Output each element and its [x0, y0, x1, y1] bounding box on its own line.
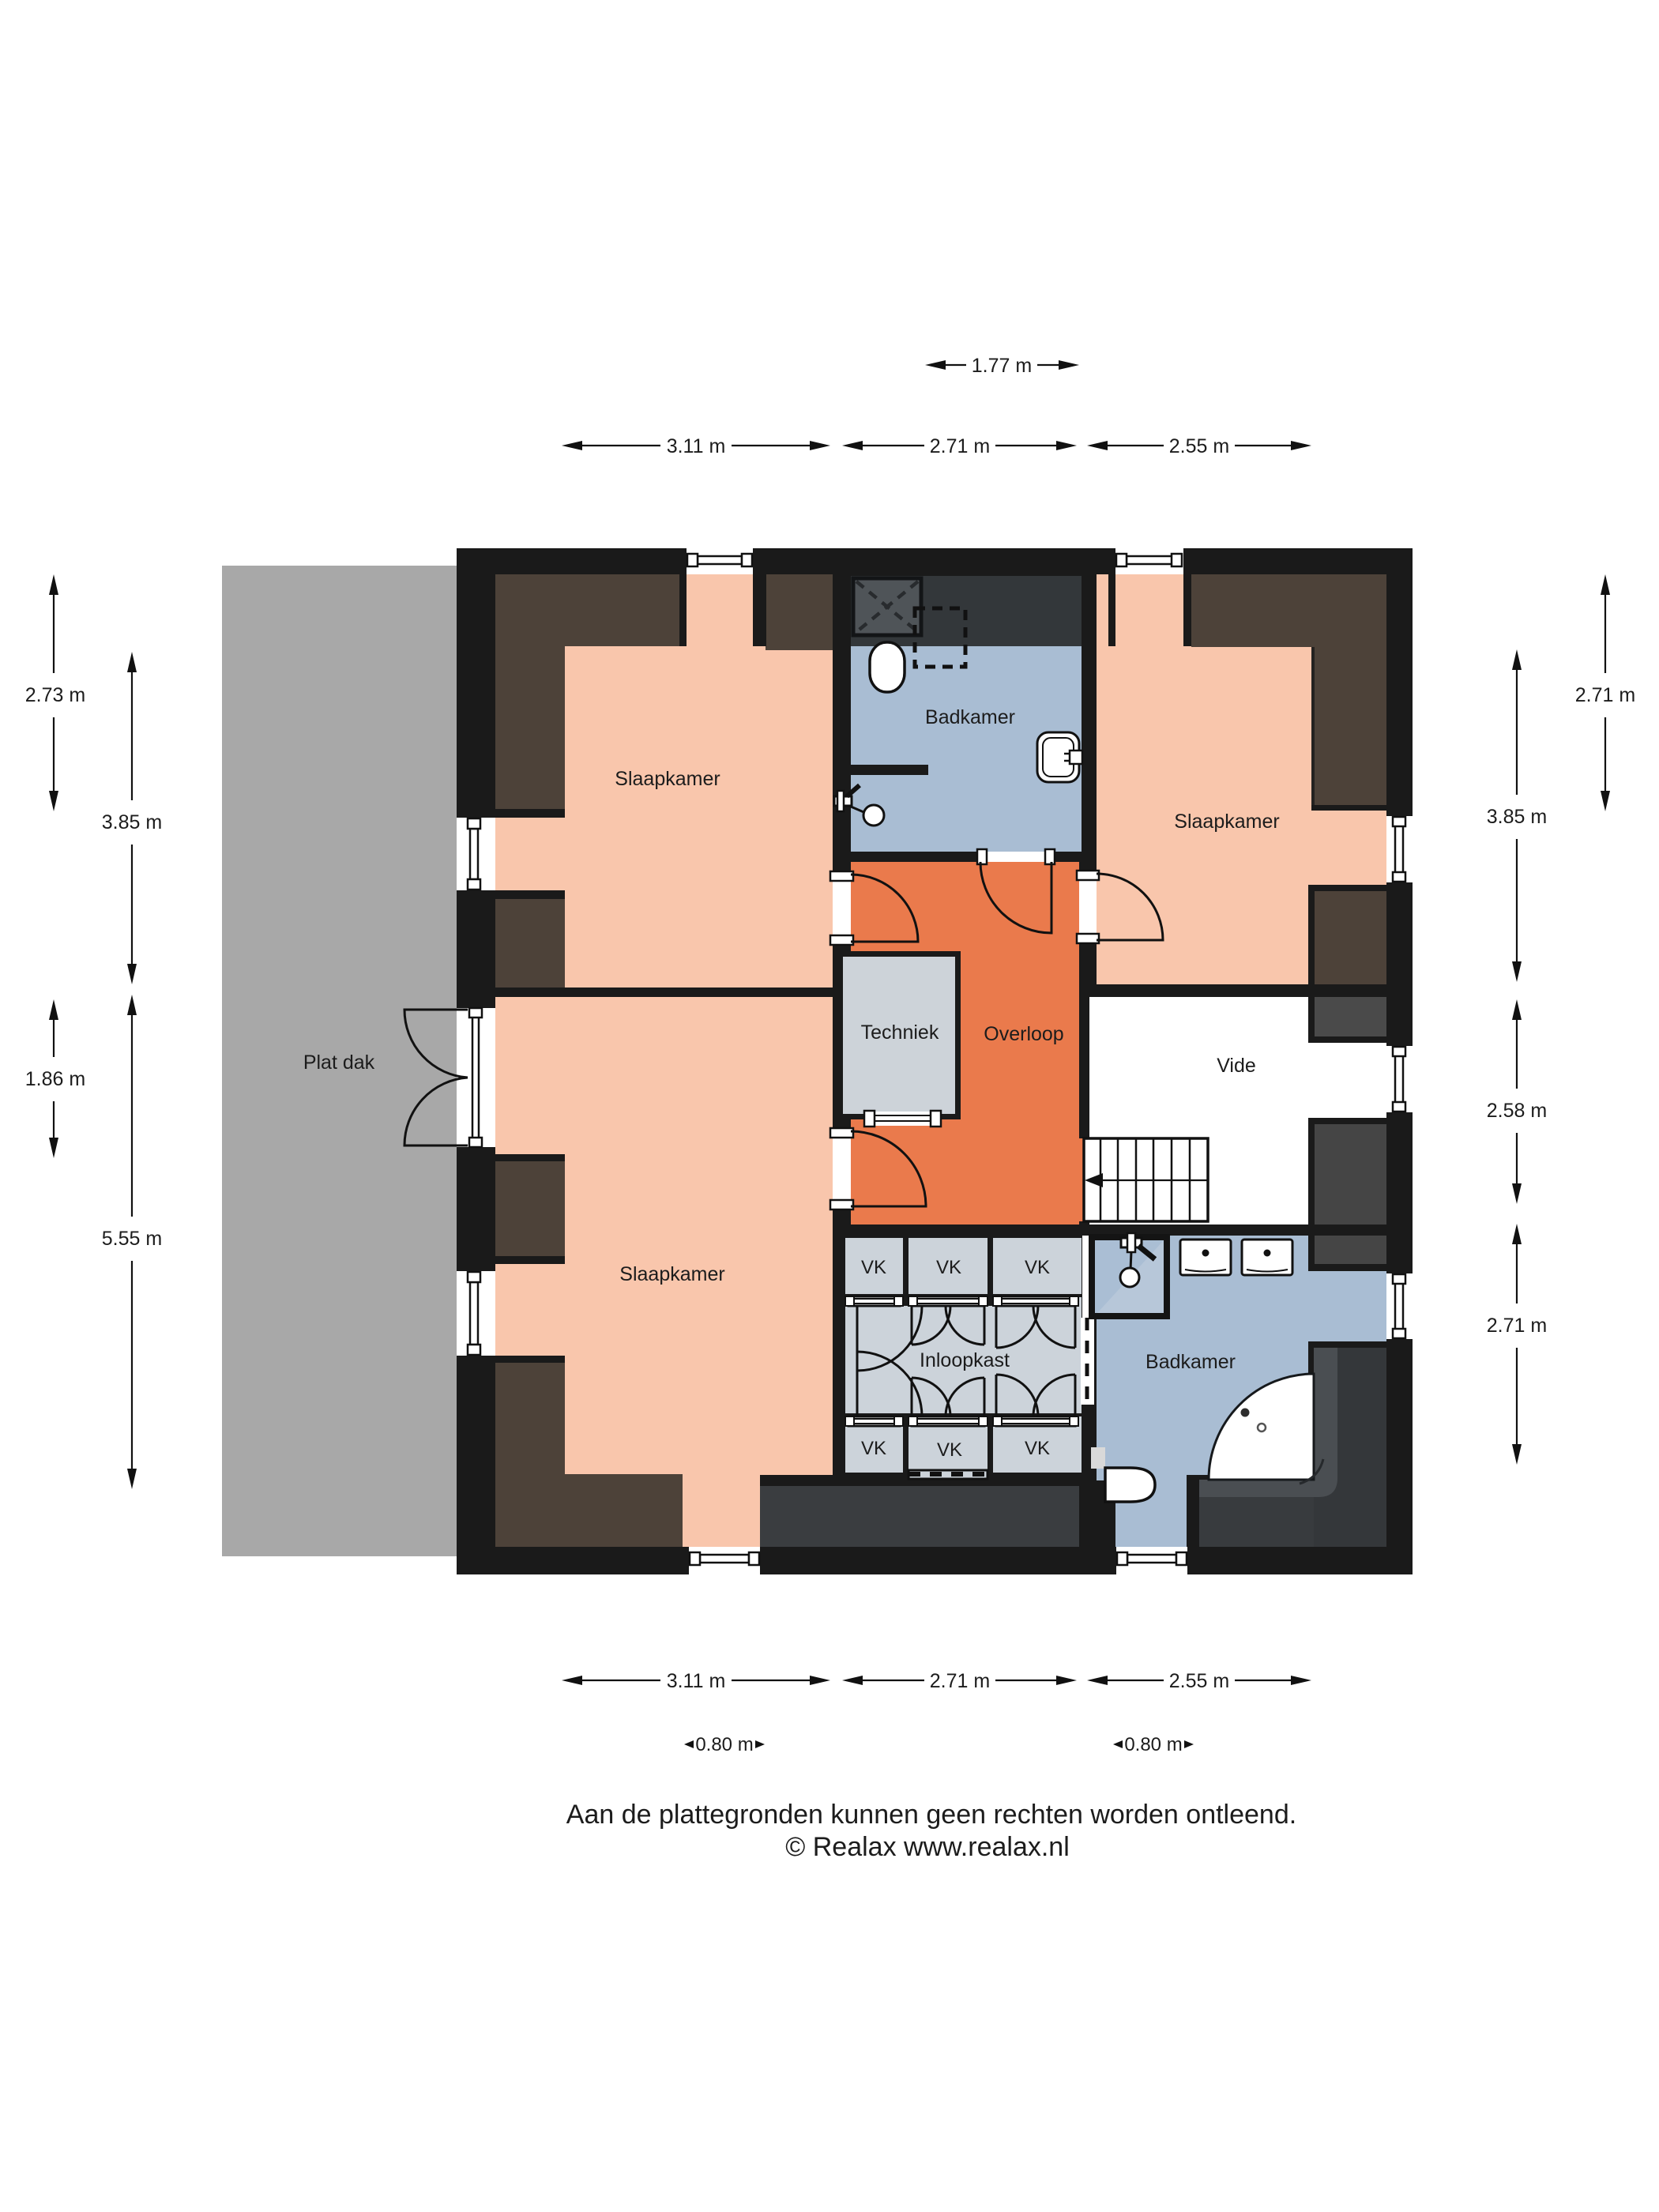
svg-text:VK: VK: [1025, 1438, 1050, 1459]
svg-text:2.71 m: 2.71 m: [930, 435, 990, 457]
svg-text:2.55 m: 2.55 m: [1169, 1670, 1229, 1692]
svg-text:1.77 m: 1.77 m: [972, 355, 1032, 377]
svg-text:Techniek: Techniek: [861, 1021, 939, 1044]
svg-text:2.71 m: 2.71 m: [1487, 1315, 1547, 1337]
svg-text:2.71 m: 2.71 m: [1575, 684, 1635, 706]
svg-text:VK: VK: [861, 1257, 886, 1278]
svg-text:3.11 m: 3.11 m: [667, 435, 726, 457]
svg-text:Slaapkamer: Slaapkamer: [615, 768, 720, 790]
svg-text:© Realax www.realax.nl: © Realax www.realax.nl: [785, 1832, 1070, 1862]
svg-text:Badkamer: Badkamer: [1145, 1351, 1236, 1373]
svg-text:0.80 m: 0.80 m: [1124, 1734, 1182, 1755]
svg-text:5.55 m: 5.55 m: [102, 1228, 162, 1250]
svg-text:Aan de plattegronden kunnen ge: Aan de plattegronden kunnen geen rechten…: [566, 1800, 1296, 1830]
svg-text:VK: VK: [1025, 1257, 1050, 1278]
svg-text:1.86 m: 1.86 m: [25, 1068, 85, 1090]
svg-text:2.58 m: 2.58 m: [1487, 1100, 1547, 1122]
svg-text:2.71 m: 2.71 m: [930, 1670, 990, 1692]
svg-text:2.55 m: 2.55 m: [1169, 435, 1229, 457]
svg-text:0.80 m: 0.80 m: [695, 1734, 753, 1755]
svg-text:VK: VK: [861, 1438, 886, 1459]
svg-text:Plat dak: Plat dak: [303, 1051, 375, 1074]
svg-text:VK: VK: [937, 1439, 962, 1461]
svg-text:VK: VK: [936, 1257, 961, 1278]
svg-text:3.11 m: 3.11 m: [667, 1670, 726, 1692]
svg-text:Inloopkast: Inloopkast: [920, 1349, 1010, 1371]
svg-text:Overloop: Overloop: [984, 1023, 1063, 1045]
svg-text:Badkamer: Badkamer: [925, 706, 1015, 728]
svg-text:2.73 m: 2.73 m: [25, 684, 85, 706]
svg-text:Slaapkamer: Slaapkamer: [619, 1263, 724, 1285]
svg-text:3.85 m: 3.85 m: [1487, 806, 1547, 828]
svg-text:Vide: Vide: [1217, 1055, 1256, 1077]
svg-text:Slaapkamer: Slaapkamer: [1174, 811, 1279, 833]
svg-text:3.85 m: 3.85 m: [102, 811, 162, 833]
